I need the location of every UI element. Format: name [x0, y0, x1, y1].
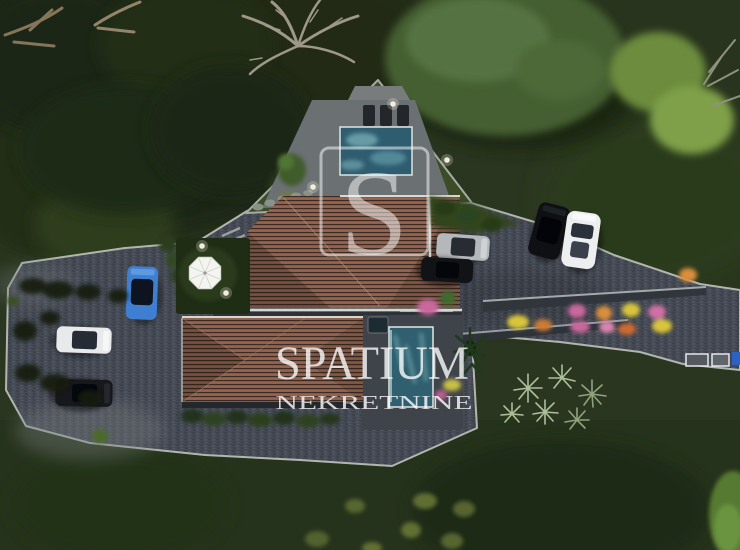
sun-loungers [363, 105, 409, 126]
watermark-logo-letter: S [340, 146, 408, 281]
deck-wall [348, 86, 410, 100]
watermark-brand: SPATIUM [275, 337, 469, 390]
umbrella-terrace [176, 238, 250, 314]
scene-canvas: S SPATIUM NEKRETNINE [0, 0, 740, 550]
watermark-subtitle: NEKRETNINE [276, 392, 473, 414]
parasol-umbrella [189, 257, 220, 288]
green-bush [92, 429, 108, 443]
aerial-render: S SPATIUM NEKRETNINE [0, 0, 740, 550]
bright-tree [650, 86, 734, 154]
blue-vehicle-at-gate [732, 352, 740, 365]
jacuzzi [368, 317, 388, 333]
